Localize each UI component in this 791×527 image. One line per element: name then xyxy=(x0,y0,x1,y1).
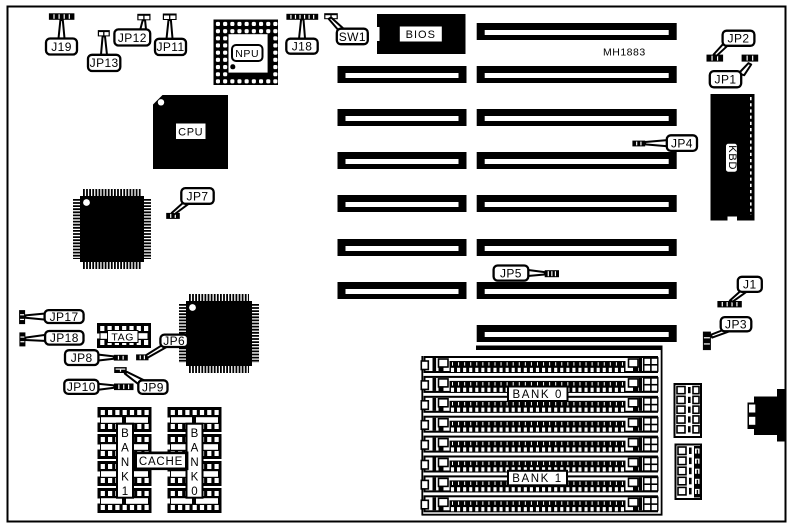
svg-text:JP9: JP9 xyxy=(142,380,164,394)
svg-text:CPU: CPU xyxy=(178,127,203,139)
svg-text:SW1: SW1 xyxy=(339,30,366,44)
svg-text:JP8: JP8 xyxy=(71,351,93,365)
svg-text:N: N xyxy=(190,457,198,469)
svg-text:JP6: JP6 xyxy=(163,334,185,348)
svg-text:A: A xyxy=(121,443,129,455)
svg-text:A: A xyxy=(191,443,199,455)
svg-text:1: 1 xyxy=(122,486,128,498)
svg-text:B: B xyxy=(191,428,199,440)
svg-text:CACHE: CACHE xyxy=(139,456,183,468)
svg-text:BANK 1: BANK 1 xyxy=(512,473,563,485)
svg-text:JP12: JP12 xyxy=(118,31,147,45)
svg-text:JP3: JP3 xyxy=(725,318,747,332)
svg-text:J1: J1 xyxy=(743,278,756,292)
svg-text:BIOS: BIOS xyxy=(406,29,436,41)
svg-text:JP1: JP1 xyxy=(715,73,737,87)
svg-text:JP11: JP11 xyxy=(156,40,184,54)
svg-text:K: K xyxy=(191,472,199,484)
svg-text:J19: J19 xyxy=(51,40,72,54)
svg-text:MH1883: MH1883 xyxy=(603,47,646,59)
svg-text:JP10: JP10 xyxy=(67,380,96,394)
svg-text:JP2: JP2 xyxy=(728,32,750,46)
svg-text:JP17: JP17 xyxy=(50,310,79,324)
svg-text:JP4: JP4 xyxy=(671,136,693,150)
svg-text:BANK 0: BANK 0 xyxy=(512,389,563,401)
svg-text:J18: J18 xyxy=(292,40,313,54)
svg-text:K: K xyxy=(121,472,129,484)
svg-text:JP5: JP5 xyxy=(500,266,522,280)
svg-text:B: B xyxy=(121,428,129,440)
svg-text:JP7: JP7 xyxy=(187,189,209,203)
svg-text:JP18: JP18 xyxy=(50,331,79,345)
svg-text:KBD: KBD xyxy=(726,145,738,170)
svg-text:NPU: NPU xyxy=(235,48,259,60)
svg-text:0: 0 xyxy=(191,486,197,498)
svg-text:JP13: JP13 xyxy=(90,56,119,70)
svg-text:TAG: TAG xyxy=(111,332,134,344)
svg-text:N: N xyxy=(121,457,129,469)
